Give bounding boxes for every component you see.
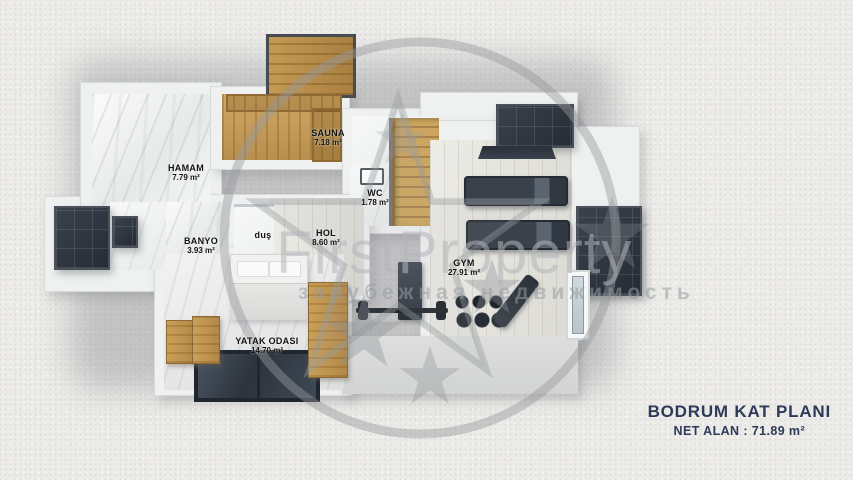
room-label-banyo: BANYO 3.93 m² — [184, 236, 218, 255]
room-name: WC — [367, 188, 383, 198]
plan-net-area: NET ALAN : 71.89 m² — [648, 424, 831, 438]
room-area: 3.93 m² — [187, 246, 215, 255]
room-name: duş — [255, 230, 272, 240]
bed — [230, 254, 308, 320]
floorplan-canvas: FirstProperty зарубежная недвижимость HA… — [0, 0, 853, 480]
room-label-gym: GYM 27.91 m² — [448, 258, 480, 277]
room-label-yatak-odasi: YATAK ODASI 14.70 m² — [235, 336, 298, 355]
plan-title: BODRUM KAT PLANI — [648, 402, 831, 422]
pillow-left — [237, 261, 269, 277]
shower-glass-divider — [234, 204, 274, 207]
banyo-window — [112, 216, 138, 248]
room-name: GYM — [453, 258, 474, 268]
blanket — [231, 283, 307, 319]
gym-right-window — [566, 270, 590, 340]
gym-skylight — [478, 146, 556, 159]
barbell — [356, 308, 448, 313]
room-label-hol: HOL 8.60 m² — [312, 228, 340, 247]
room-area: 14.70 m² — [251, 346, 283, 355]
room-label-dus: duş — [255, 230, 272, 240]
room-area: 27.91 m² — [448, 268, 480, 277]
room-label-hamam: HAMAM 7.79 m² — [168, 163, 204, 182]
room-name: HOL — [316, 228, 336, 238]
pillow-right — [269, 261, 301, 277]
room-label-sauna: SAUNA 7.18 m² — [311, 128, 345, 147]
room-name: BANYO — [184, 236, 218, 246]
wardrobe-left-b — [192, 316, 220, 364]
room-area: 7.18 m² — [314, 138, 342, 147]
treadmill-2 — [466, 220, 570, 250]
room-name: YATAK ODASI — [235, 336, 298, 346]
terrace — [342, 336, 578, 394]
treadmill-1 — [464, 176, 568, 206]
room-name: HAMAM — [168, 163, 204, 173]
sauna-upper-extension — [266, 34, 356, 98]
room-area: 7.79 m² — [172, 173, 200, 182]
stair-handrail — [389, 118, 392, 226]
left-window-panel — [54, 206, 110, 270]
room-area: 8.60 m² — [312, 238, 340, 247]
room-area: 1.78 m² — [361, 198, 389, 207]
room-label-wc: WC 1.78 m² — [361, 188, 389, 207]
wc-sink — [360, 168, 384, 185]
top-right-window-panel — [496, 104, 574, 148]
hamam-floor — [92, 94, 210, 212]
tall-cabinet — [308, 282, 348, 378]
room-name: SAUNA — [311, 128, 345, 138]
plan-title-block: BODRUM KAT PLANI NET ALAN : 71.89 m² — [648, 402, 831, 438]
